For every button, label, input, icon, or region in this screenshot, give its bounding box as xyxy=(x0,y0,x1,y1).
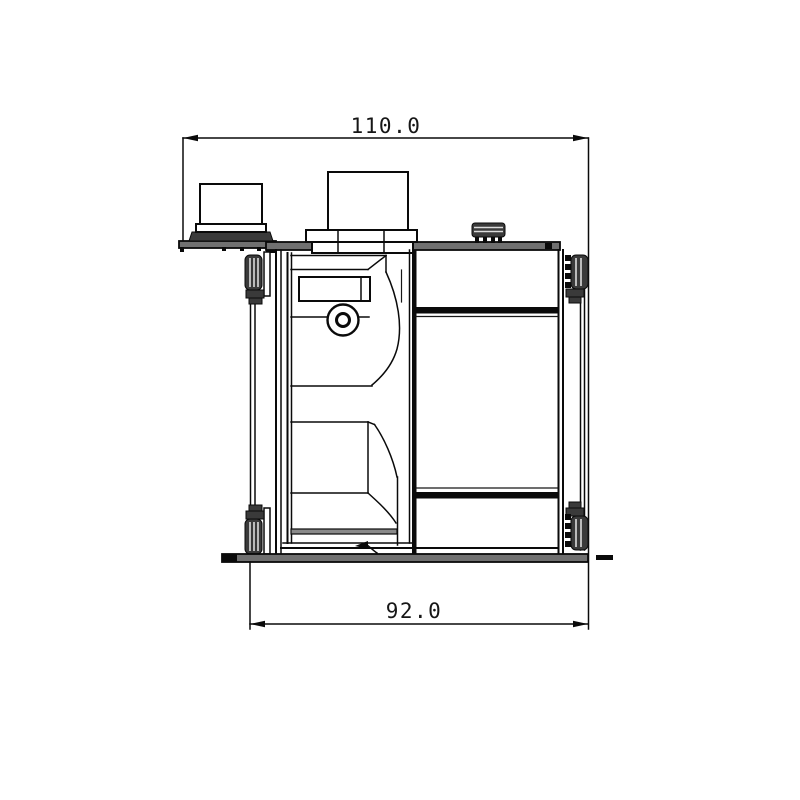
plate-end-mark-left xyxy=(222,554,237,562)
screw-boss-outer xyxy=(328,305,359,336)
module-pocket xyxy=(299,277,370,301)
knob-body xyxy=(472,223,505,237)
right-chamber xyxy=(416,307,558,499)
driver-module xyxy=(288,250,417,554)
left-box-lip xyxy=(196,224,266,232)
divider-wall xyxy=(412,250,417,554)
left-spring-clip-bottom xyxy=(245,505,270,554)
plate-end-mark-right xyxy=(596,555,613,560)
center-box xyxy=(328,172,408,230)
left-box-pedestal xyxy=(189,232,273,241)
left-wing-plate xyxy=(179,241,276,248)
bevel-diagonal xyxy=(368,256,386,270)
left-terminal-block xyxy=(179,184,276,253)
arrowhead-left-icon xyxy=(250,621,265,627)
horn-curve-lower xyxy=(368,493,396,523)
dimension-label-top: 110.0 xyxy=(351,114,422,138)
flange-tier-1 xyxy=(306,230,417,242)
horn-curve-upper xyxy=(372,272,400,385)
clip-ribbed-block xyxy=(571,516,588,550)
dimension-bottom-92: 92.0 xyxy=(250,562,588,629)
plate-mark xyxy=(545,243,552,249)
module-base-strip xyxy=(291,529,397,534)
center-terminal-block xyxy=(306,172,417,253)
screw-hole xyxy=(337,314,350,327)
connector-knob xyxy=(472,223,505,243)
flange-tier-2 xyxy=(312,242,413,253)
cad-drawing: 110.0 xyxy=(0,0,800,800)
left-spring-clip-top xyxy=(245,252,270,304)
clip-ribbed-block xyxy=(571,255,588,289)
arrowhead-right-icon xyxy=(573,135,588,141)
cad-canvas: 110.0 xyxy=(0,0,800,800)
left-box xyxy=(200,184,262,224)
arrowhead-left-icon xyxy=(183,135,198,141)
bottom-mounting-plate xyxy=(222,554,613,562)
gasket-bar-top xyxy=(416,307,558,314)
arrowhead-right-icon xyxy=(573,621,588,627)
horn-curve-lower-right xyxy=(375,425,398,478)
dimension-label-bottom: 92.0 xyxy=(386,599,443,623)
gasket-bar-bottom xyxy=(416,492,558,499)
